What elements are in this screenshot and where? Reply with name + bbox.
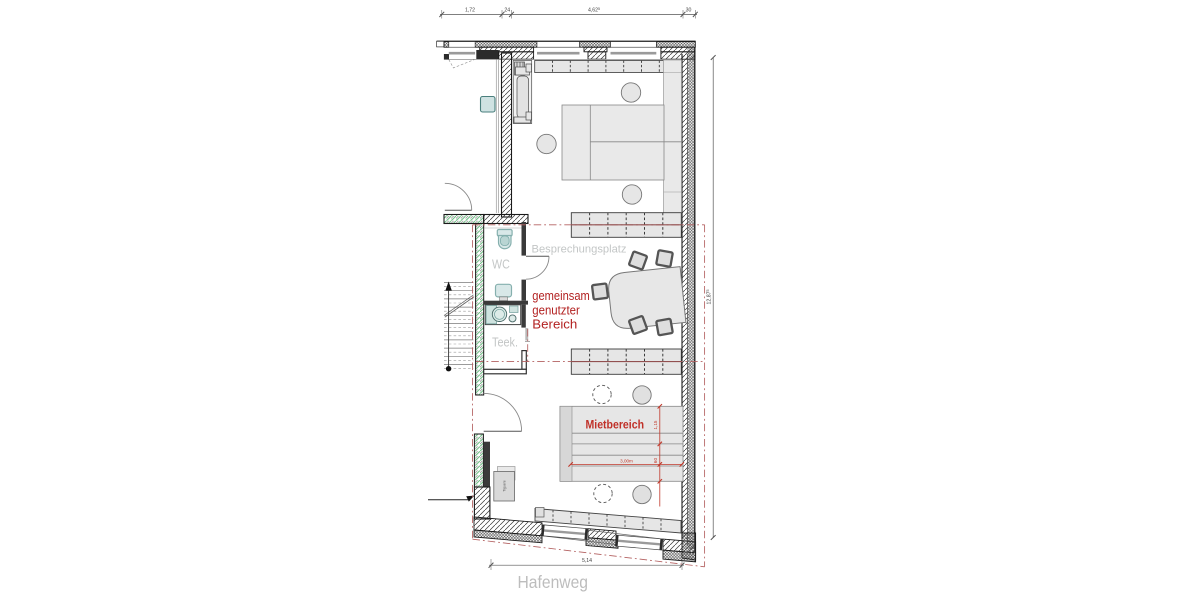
svg-text:5,14: 5,14 xyxy=(582,558,592,564)
svg-text:12,875: 12,875 xyxy=(706,290,713,305)
svg-text:gemeinsam: gemeinsam xyxy=(532,288,590,303)
svg-text:Bereich: Bereich xyxy=(532,317,577,332)
svg-text:1,72: 1,72 xyxy=(465,8,475,14)
svg-text:30: 30 xyxy=(686,8,692,14)
svg-text:3,00m: 3,00m xyxy=(620,458,633,463)
svg-text:Mietbereich: Mietbereich xyxy=(586,418,645,432)
svg-text:1,15: 1,15 xyxy=(653,420,658,429)
svg-text:Teek.: Teek. xyxy=(492,335,518,350)
svg-text:60: 60 xyxy=(653,458,658,464)
svg-text:Tiguere: Tiguere xyxy=(503,480,507,491)
svg-text:genutzter: genutzter xyxy=(532,302,580,317)
svg-text:Hafenweg: Hafenweg xyxy=(518,572,589,592)
svg-text:Besprechungsplatz: Besprechungsplatz xyxy=(532,244,627,256)
svg-text:24: 24 xyxy=(504,8,510,14)
svg-text:WC: WC xyxy=(492,257,510,272)
